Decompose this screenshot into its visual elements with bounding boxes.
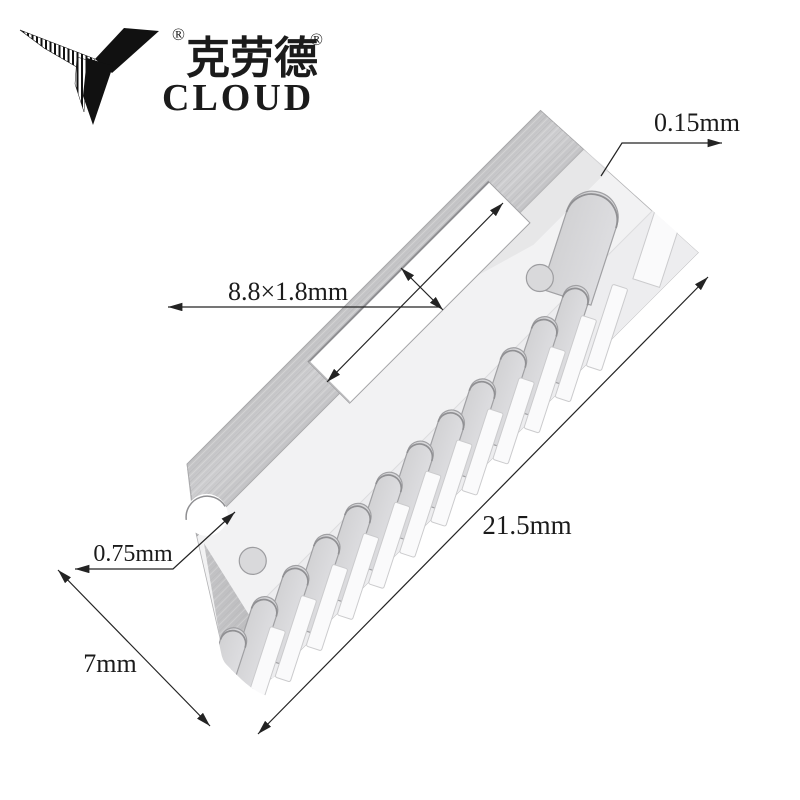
dimension-label-length: 21.5mm: [482, 510, 571, 540]
dimension-label-slot: 8.8×1.8mm: [228, 277, 348, 306]
blade-illustration: [64, 83, 729, 748]
dimension-label-width: 7mm: [83, 649, 136, 678]
registered-mark: ®: [310, 30, 323, 49]
bird-logo-icon: [20, 28, 159, 125]
brand-name-cn: 克劳德: [186, 34, 318, 83]
thickness-leader-line: [601, 143, 722, 176]
dimension-label-thickness: 0.15mm: [654, 108, 740, 137]
registered-mark: ®: [172, 25, 185, 44]
bird-body: [83, 58, 113, 125]
product-diagram-canvas: ® 克劳德 ® CLOUD: [0, 0, 800, 800]
dimension-label-notch: 0.75mm: [93, 541, 173, 567]
width-arrow: [58, 570, 210, 726]
blade-body: [109, 103, 699, 693]
blade-diagram-svg: ® 克劳德 ® CLOUD: [0, 0, 800, 800]
brand-logo: ® 克劳德 ® CLOUD: [20, 25, 323, 125]
brand-name-en: CLOUD: [162, 77, 314, 119]
